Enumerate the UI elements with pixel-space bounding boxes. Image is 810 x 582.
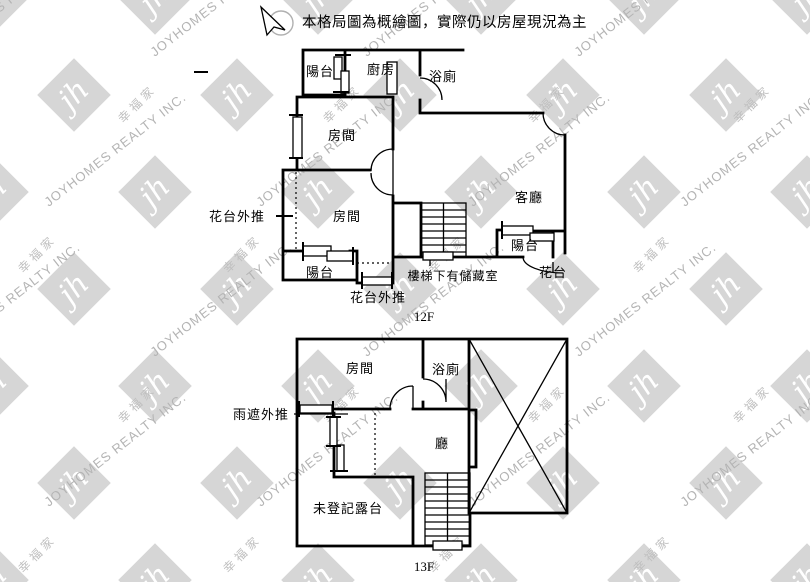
rain-shield-window-symbol (300, 405, 332, 413)
label-flower-right: 花台 (539, 265, 567, 280)
room-label-bath-13f: 浴廁 (432, 362, 460, 377)
floor-name-12f: 12F (414, 309, 434, 324)
room-label-balcony-right: 陽台 (511, 238, 539, 253)
window-symbol (330, 417, 337, 446)
plan-line (423, 379, 446, 402)
room-label-balcony-bottom: 陽台 (306, 265, 334, 280)
window-symbol (293, 117, 302, 158)
floor-plan-page: jhjhjhjhjhjhjhjhjhjhjhjhjhjhjhjhjhjhjhjh… (0, 0, 810, 582)
door-symbol (433, 541, 462, 550)
floor-plan-13f: 房間 浴廁 雨遮外推 廳 未登記露台 13F (233, 339, 567, 574)
storage-door-symbol (423, 252, 453, 260)
room-label-living: 客廳 (515, 190, 543, 205)
plan-line (543, 113, 565, 135)
room-label-room-lower: 房間 (333, 209, 361, 224)
window-symbol (327, 251, 353, 261)
plan-line (421, 203, 466, 257)
window-symbol (341, 71, 349, 93)
open-area-cross (469, 339, 567, 513)
room-label-balcony-top: 陽台 (306, 64, 334, 79)
stairs-13f (425, 473, 470, 545)
floor-plan-drawing: 本格局圖為概繪圖，實際仍以房屋現況為主 (0, 0, 810, 582)
plan-line (425, 473, 470, 545)
room-label-room-13f: 房間 (346, 361, 374, 376)
plan-line (371, 149, 393, 171)
label-flower-push-bottom: 花台外推 (350, 290, 406, 305)
plan-line (390, 386, 413, 409)
window-symbol (362, 277, 392, 285)
window-symbol (337, 445, 344, 471)
label-unregistered-terrace: 未登記露台 (313, 501, 383, 516)
floor-plan-12f: 陽台 廚房 浴廁 房間 客廳 花台外推 房間 陽台 陽台 樓梯下有儲藏室 花台 … (194, 50, 567, 324)
label-rain-shield-push: 雨遮外推 (233, 407, 289, 422)
disclaimer-text: 本格局圖為概繪圖，實際仍以房屋現況為主 (302, 13, 587, 31)
room-label-room-upper: 房間 (328, 128, 356, 143)
north-arrow-icon (261, 7, 293, 35)
label-storage-under-stairs: 樓梯下有儲藏室 (407, 268, 498, 283)
room-label-kitchen: 廚房 (367, 62, 395, 77)
window-symbol (502, 226, 533, 235)
label-flower-push-left: 花台外推 (209, 209, 265, 224)
plan-line (371, 173, 393, 195)
floor-name-13f: 13F (414, 559, 434, 574)
room-label-bath-12f: 浴廁 (429, 69, 457, 84)
room-label-hall: 廳 (435, 436, 449, 451)
